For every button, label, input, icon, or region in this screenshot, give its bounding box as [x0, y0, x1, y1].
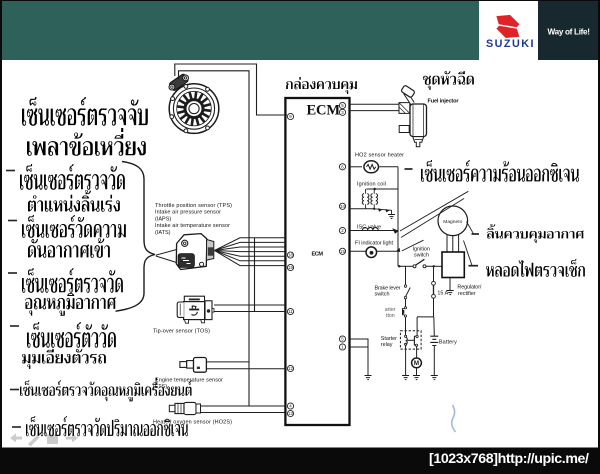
- svg-text:ECM: ECM: [307, 102, 341, 118]
- svg-text:ECM: ECM: [312, 252, 324, 258]
- svg-text:18: 18: [288, 253, 293, 258]
- svg-text:Regulator/: Regulator/: [457, 285, 482, 291]
- svg-text:Magneto: Magneto: [443, 219, 462, 225]
- svg-text:M: M: [414, 360, 419, 367]
- svg-text:Intake air temperature sensor: Intake air temperature sensor: [155, 223, 230, 229]
- svg-text:Throttle position sensor (TPS): Throttle position sensor (TPS): [155, 203, 232, 209]
- svg-text:Ignition: Ignition: [413, 246, 430, 252]
- svg-text:Engine temperature sensor: Engine temperature sensor: [155, 378, 223, 384]
- svg-text:Fuel injector: Fuel injector: [428, 99, 460, 105]
- svg-text:19: 19: [288, 265, 293, 270]
- svg-text:15: 15: [340, 249, 345, 254]
- svg-text:15 A: 15 A: [437, 290, 448, 296]
- svg-text:switch: switch: [414, 252, 429, 258]
- svg-text:(IATS): (IATS): [155, 230, 171, 236]
- svg-text:(ETS): (ETS): [153, 384, 168, 390]
- svg-text:11: 11: [288, 309, 293, 314]
- svg-text:Ignition coil: Ignition coil: [357, 182, 386, 188]
- svg-text:12: 12: [288, 366, 293, 371]
- svg-text:HO2 sensor heater: HO2 sensor heater: [355, 152, 404, 158]
- svg-text:tton: tton: [386, 313, 395, 319]
- svg-text:(IAPS): (IAPS): [155, 216, 171, 222]
- svg-text:Way of Life!: Way of Life!: [548, 28, 591, 37]
- svg-text:switch: switch: [375, 292, 390, 298]
- svg-text:Tip-over sensor (TOS): Tip-over sensor (TOS): [153, 329, 210, 335]
- svg-text:rectifier: rectifier: [458, 291, 476, 297]
- svg-text:Starter: Starter: [381, 336, 397, 342]
- svg-text:ISC valve: ISC valve: [357, 224, 381, 230]
- svg-text:[1023x768]http://upic.me/: [1023x768]http://upic.me/: [429, 451, 589, 467]
- svg-text:Heated oxygen sensor (HO2S): Heated oxygen sensor (HO2S): [153, 420, 232, 426]
- svg-text:34: 34: [340, 204, 345, 209]
- svg-text:13: 13: [288, 411, 293, 416]
- svg-text:SUZUKI: SUZUKI: [486, 38, 534, 50]
- svg-text:Battery: Battery: [439, 340, 457, 346]
- svg-text:relay: relay: [381, 342, 393, 348]
- svg-text:Intake air pressure sensor: Intake air pressure sensor: [155, 210, 221, 216]
- svg-text:FI indicator light: FI indicator light: [355, 240, 393, 246]
